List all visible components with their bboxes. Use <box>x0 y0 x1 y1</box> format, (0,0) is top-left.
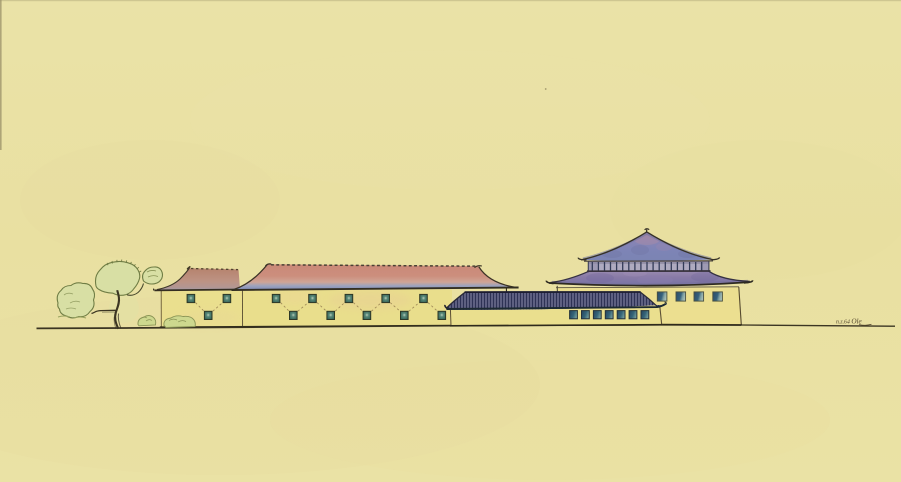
svg-text:n.z.64 Ole: n.z.64 Ole <box>836 317 863 325</box>
